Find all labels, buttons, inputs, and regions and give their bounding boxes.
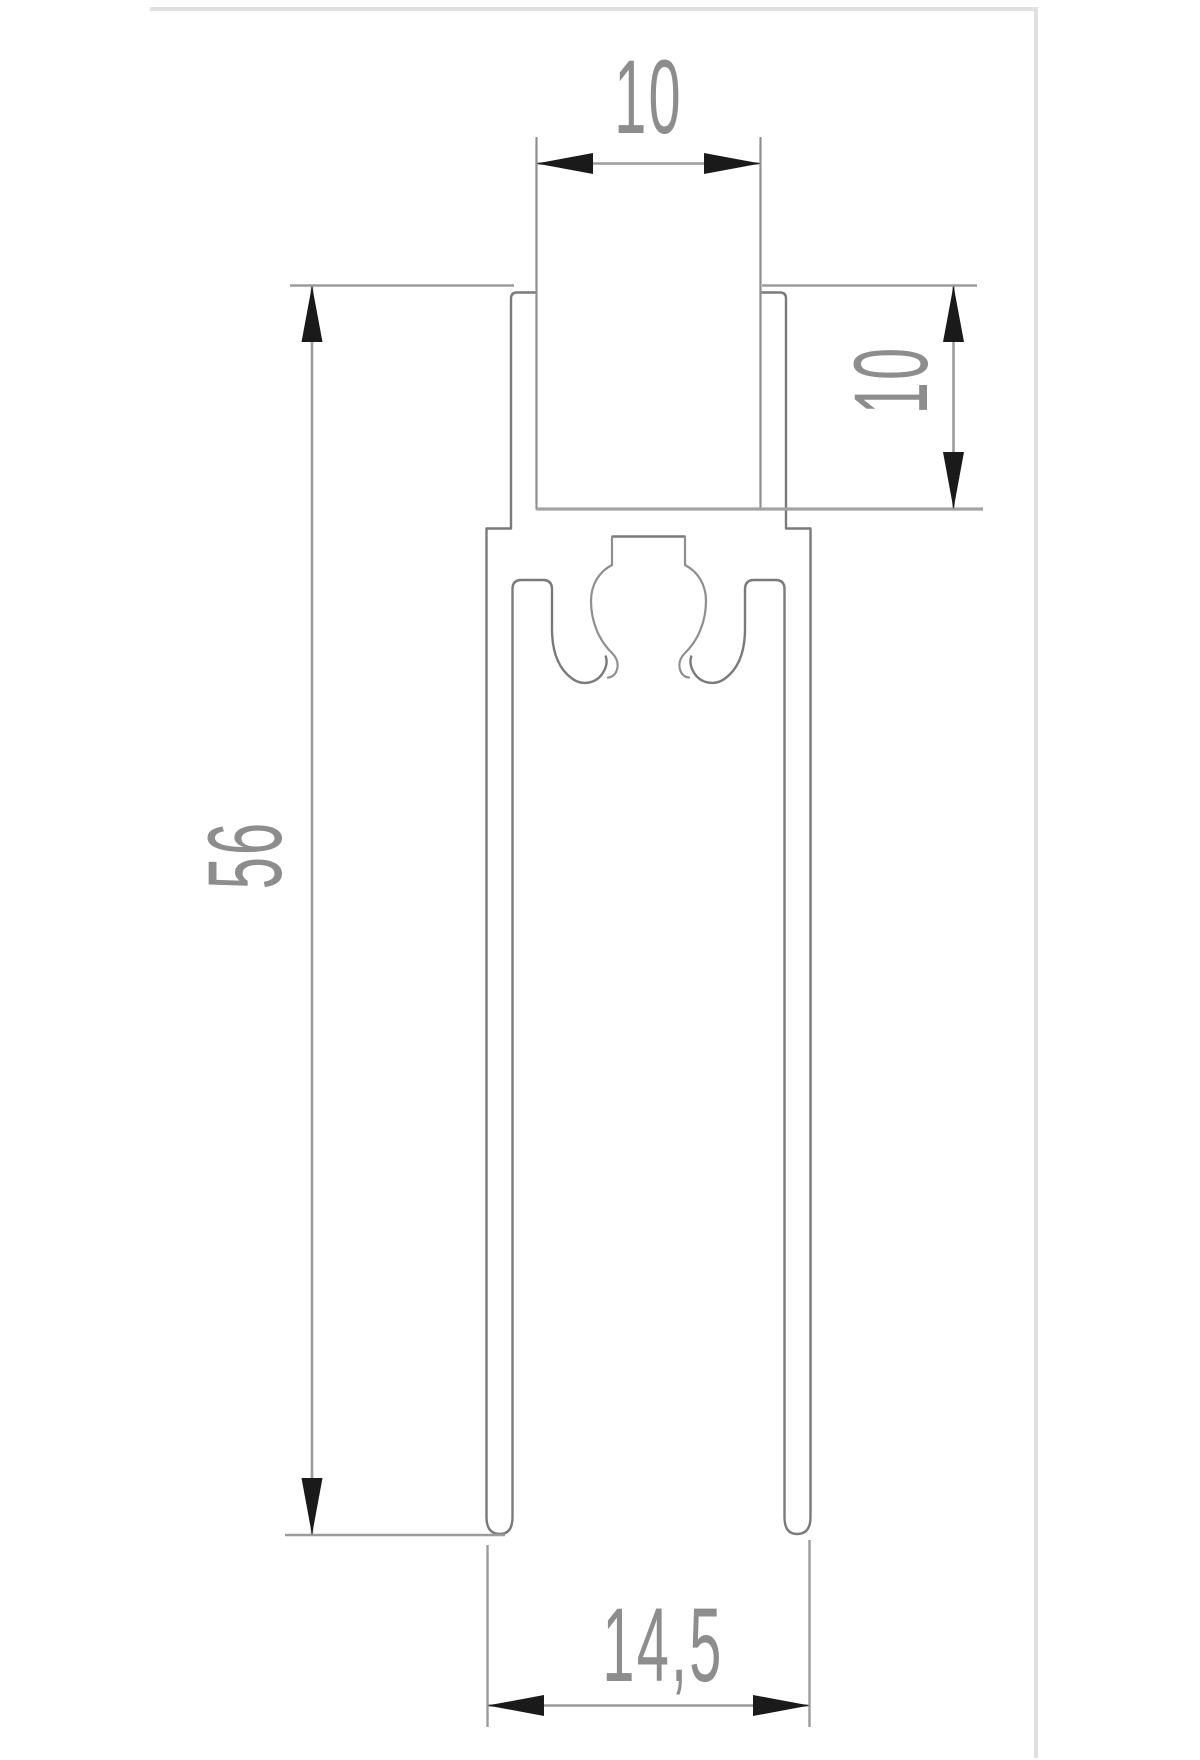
dim-slot-width-label: 10 — [614, 38, 683, 156]
dim-height-arrow-bottom — [302, 1478, 323, 1535]
dim-slot-depth-arrow-top — [943, 286, 964, 343]
dim-height-label: 56 — [186, 821, 304, 890]
dim-slot-depth-label: 10 — [832, 346, 950, 415]
dim-slot-depth-arrow-bottom — [943, 452, 964, 509]
dim-height-arrow-top — [302, 286, 323, 343]
screw-port-right-arc — [679, 537, 706, 678]
profile-right-outline — [691, 293, 811, 1535]
dim-width-arrow-right — [753, 1695, 810, 1716]
screw-port-left-arc — [591, 537, 618, 678]
profile-left-outline — [487, 293, 607, 1535]
drawing-sheet: 10 10 56 14,5 — [0, 0, 1200, 1760]
profile-cross-section-drawing: 10 10 56 14,5 — [0, 0, 1200, 1760]
dim-slot-width-arrow-right — [704, 153, 761, 174]
dim-width-label: 14,5 — [602, 1586, 723, 1704]
dim-width-arrow-left — [488, 1695, 545, 1716]
dim-slot-width-arrow-left — [537, 153, 594, 174]
